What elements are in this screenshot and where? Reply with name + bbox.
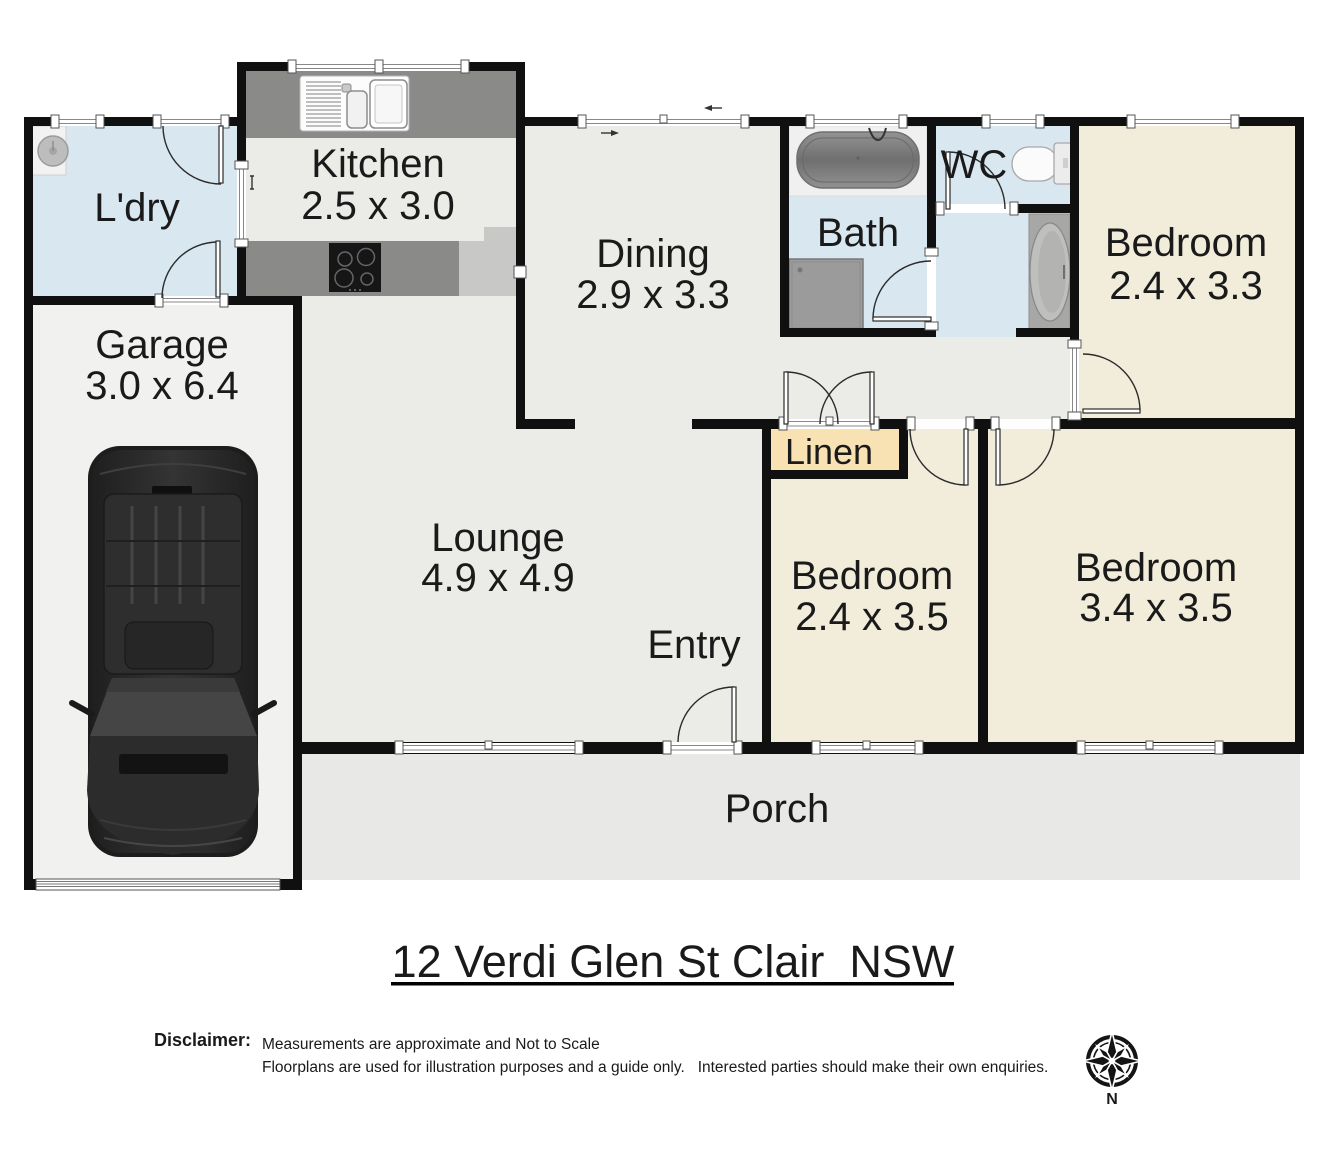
svg-text:Bedroom: Bedroom	[1105, 221, 1267, 265]
svg-text:Measurements are approximate a: Measurements are approximate and Not to …	[262, 1036, 600, 1053]
svg-text:Entry: Entry	[647, 623, 740, 667]
svg-text:2.5 x 3.0: 2.5 x 3.0	[301, 184, 454, 228]
svg-text:Dining: Dining	[596, 232, 709, 276]
svg-text:N: N	[1106, 1091, 1118, 1108]
svg-text:Disclaimer:: Disclaimer:	[154, 1030, 251, 1050]
svg-text:12 Verdi Glen St Clair NSW: 12 Verdi Glen St Clair NSW	[392, 936, 955, 987]
svg-text:Bath: Bath	[817, 211, 899, 255]
svg-text:4.9 x 4.9: 4.9 x 4.9	[421, 556, 574, 600]
svg-text:Bedroom: Bedroom	[1075, 546, 1237, 590]
svg-text:3.4 x 3.5: 3.4 x 3.5	[1079, 586, 1232, 630]
svg-text:2.4 x 3.5: 2.4 x 3.5	[795, 595, 948, 639]
svg-text:Porch: Porch	[725, 787, 830, 831]
svg-text:Floorplans are used for illust: Floorplans are used for illustration pur…	[262, 1059, 1048, 1076]
svg-text:L'dry: L'dry	[94, 186, 179, 230]
svg-text:Lounge: Lounge	[431, 516, 564, 560]
svg-text:Linen: Linen	[785, 431, 873, 472]
svg-text:WC: WC	[941, 143, 1008, 187]
svg-text:2.4 x 3.3: 2.4 x 3.3	[1109, 264, 1262, 308]
svg-text:Kitchen: Kitchen	[311, 142, 444, 186]
svg-text:Garage: Garage	[95, 323, 228, 367]
svg-text:2.9 x 3.3: 2.9 x 3.3	[576, 273, 729, 317]
svg-text:3.0 x 6.4: 3.0 x 6.4	[85, 364, 238, 408]
svg-text:Bedroom: Bedroom	[791, 554, 953, 598]
